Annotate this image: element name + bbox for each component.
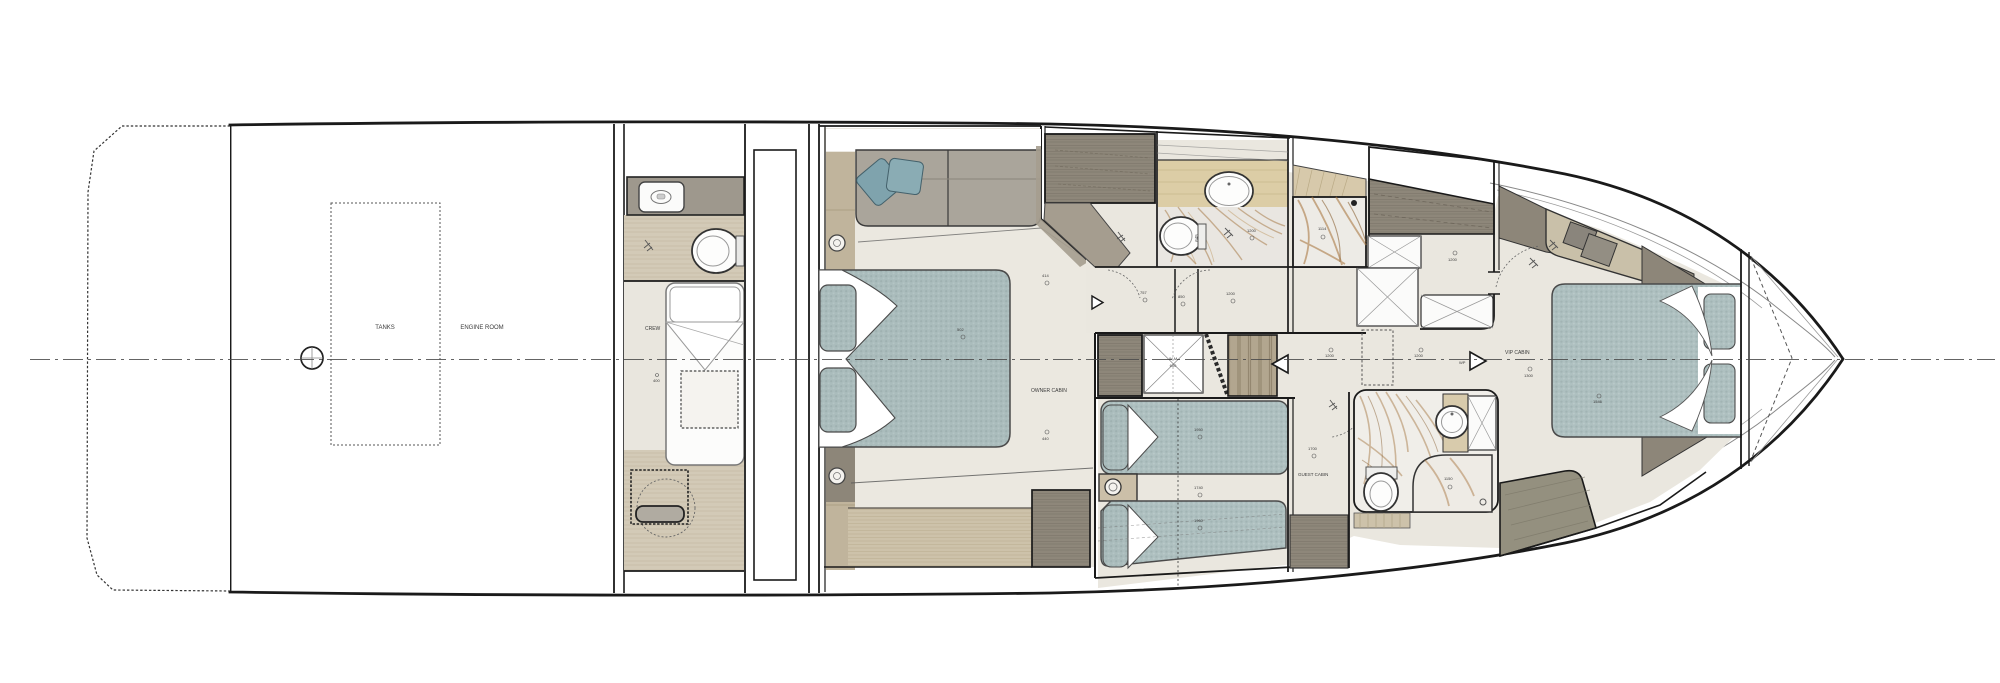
svg-text:W-M: W-M <box>1169 356 1177 361</box>
svg-text:TANKS: TANKS <box>375 325 395 331</box>
svg-text:440: 440 <box>1042 436 1049 441</box>
svg-text:1150: 1150 <box>1444 476 1453 481</box>
svg-text:1700: 1700 <box>1308 446 1318 451</box>
svg-text:1950: 1950 <box>1194 427 1204 432</box>
svg-text:GUEST CABIN: GUEST CABIN <box>1298 472 1328 477</box>
svg-text:1740: 1740 <box>1194 485 1204 490</box>
svg-text:1200: 1200 <box>1325 353 1335 358</box>
svg-text:850: 850 <box>1178 294 1185 299</box>
svg-text:414: 414 <box>1042 273 1049 278</box>
svg-text:OWNER CABIN: OWNER CABIN <box>1031 388 1067 394</box>
svg-text:CREW: CREW <box>645 326 661 332</box>
svg-text:400: 400 <box>653 378 660 383</box>
svg-text:WP: WP <box>1459 360 1466 365</box>
svg-text:1546: 1546 <box>1593 399 1603 404</box>
svg-text:1200: 1200 <box>1414 353 1424 358</box>
svg-text:645: 645 <box>1194 234 1199 242</box>
svg-text:1960: 1960 <box>1194 518 1204 523</box>
svg-text:502: 502 <box>957 327 964 332</box>
svg-text:1114: 1114 <box>1318 226 1327 231</box>
svg-text:1200: 1200 <box>1226 291 1236 296</box>
svg-text:1200: 1200 <box>1247 228 1257 233</box>
svg-text:ENGINE ROOM: ENGINE ROOM <box>460 325 503 331</box>
svg-text:1300: 1300 <box>1524 373 1534 378</box>
svg-text:1200: 1200 <box>1448 257 1458 262</box>
svg-text:757: 757 <box>1140 290 1147 295</box>
svg-text:VIP CABIN: VIP CABIN <box>1505 350 1530 356</box>
svg-text:600: 600 <box>1170 363 1177 368</box>
